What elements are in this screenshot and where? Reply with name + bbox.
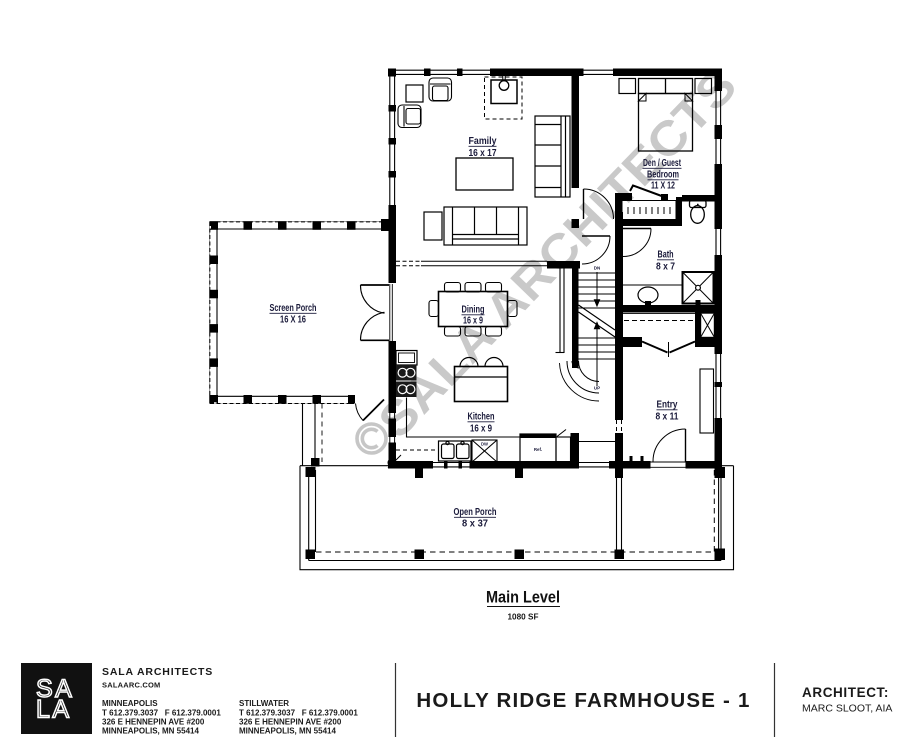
svg-text:8 x 11: 8 x 11 [656, 411, 679, 423]
svg-text:16 x 9: 16 x 9 [463, 315, 483, 327]
svg-text:MINNEAPOLIS: MINNEAPOLIS [102, 699, 158, 708]
svg-text:Kitchen: Kitchen [468, 411, 495, 423]
svg-text:LA: LA [36, 696, 72, 724]
svg-text:16 X 16: 16 X 16 [280, 314, 306, 326]
svg-text:326 E HENNEPIN AVE #200: 326 E HENNEPIN AVE #200 [239, 718, 342, 727]
svg-text:UP: UP [594, 386, 600, 391]
svg-text:Bath: Bath [658, 249, 674, 261]
svg-text:1080 SF: 1080 SF [508, 612, 539, 622]
svg-text:Den / Guest: Den / Guest [643, 157, 681, 169]
svg-text:HOLLY RIDGE FARMHOUSE - 1: HOLLY RIDGE FARMHOUSE - 1 [416, 689, 750, 712]
svg-text:8 x 37: 8 x 37 [462, 518, 488, 530]
svg-text:Open Porch: Open Porch [454, 506, 497, 518]
svg-text:Screen Porch: Screen Porch [270, 302, 317, 314]
svg-text:T 612.379.3037 F 612.379.000: T 612.379.3037 F 612.379.0001 [102, 709, 221, 718]
svg-text:STILLWATER: STILLWATER [239, 699, 289, 708]
svg-text:DW: DW [481, 442, 488, 447]
svg-text:ARCHITECT:: ARCHITECT: [802, 685, 889, 700]
svg-text:326 E HENNEPIN AVE #200: 326 E HENNEPIN AVE #200 [102, 718, 205, 727]
svg-text:DN: DN [594, 266, 601, 271]
svg-text:SALAARC.COM: SALAARC.COM [102, 681, 160, 690]
svg-text:Main Level: Main Level [486, 588, 560, 607]
svg-text:16 x 9: 16 x 9 [470, 423, 492, 435]
svg-text:16 x 17: 16 x 17 [469, 147, 497, 159]
svg-text:Ref.: Ref. [534, 447, 542, 452]
svg-text:Family: Family [469, 135, 497, 147]
svg-text:11 X 12: 11 X 12 [651, 180, 675, 192]
svg-text:MINNEAPOLIS, MN 55414: MINNEAPOLIS, MN 55414 [239, 727, 336, 736]
svg-text:8 x 7: 8 x 7 [656, 261, 675, 273]
svg-text:Entry: Entry [657, 399, 678, 411]
svg-text:MARC SLOOT, AIA: MARC SLOOT, AIA [802, 703, 892, 715]
svg-text:T 612.379.3037 F 612.379.000: T 612.379.3037 F 612.379.0001 [239, 709, 358, 718]
svg-text:MINNEAPOLIS, MN 55414: MINNEAPOLIS, MN 55414 [102, 727, 199, 736]
svg-text:SALA ARCHITECTS: SALA ARCHITECTS [102, 666, 213, 678]
